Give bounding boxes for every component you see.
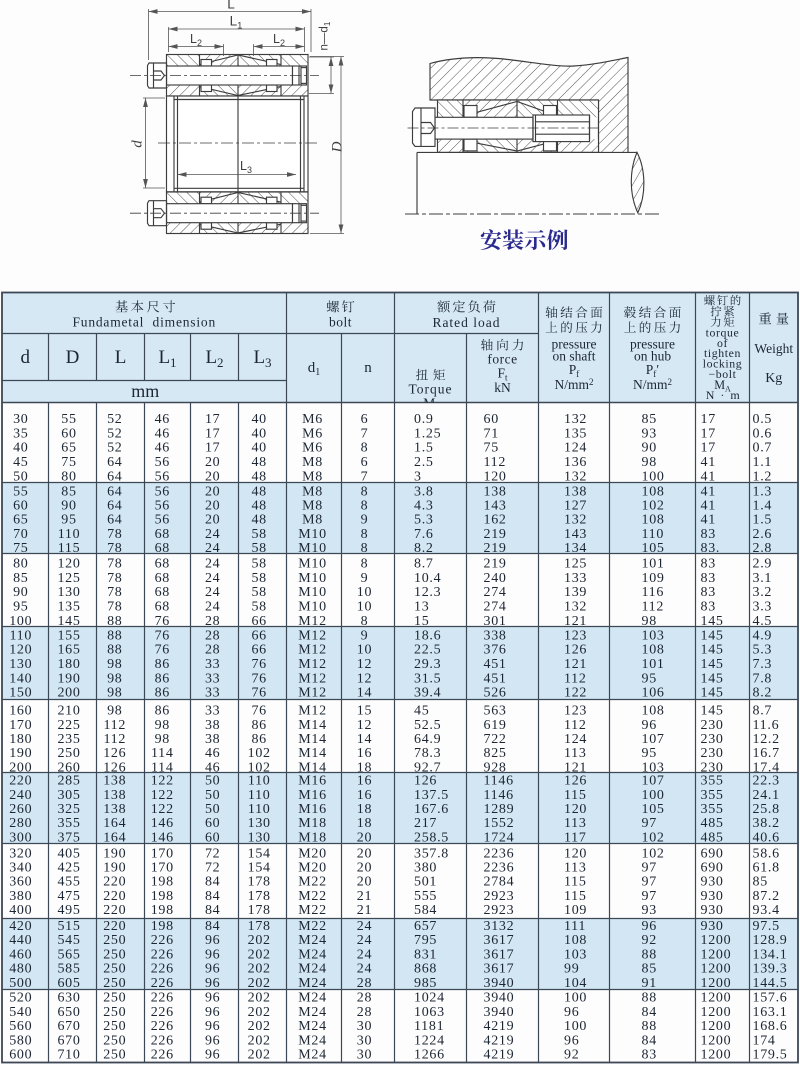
svg-text:2.5: 2.5 xyxy=(414,455,434,470)
svg-text:d: d xyxy=(21,347,31,368)
svg-text:12.2: 12.2 xyxy=(753,732,780,747)
svg-text:202: 202 xyxy=(248,1033,271,1048)
svg-text:M12: M12 xyxy=(298,704,327,719)
svg-text:M18: M18 xyxy=(298,816,327,831)
svg-text:93: 93 xyxy=(642,903,657,918)
svg-text:134: 134 xyxy=(564,541,587,556)
svg-text:38.2: 38.2 xyxy=(753,816,780,831)
svg-text:280: 280 xyxy=(9,816,32,831)
svg-text:20: 20 xyxy=(205,469,220,484)
svg-text:76: 76 xyxy=(155,614,170,629)
svg-text:405: 405 xyxy=(57,846,80,861)
svg-text:138: 138 xyxy=(484,485,507,500)
svg-text:1146: 1146 xyxy=(484,788,514,803)
svg-text:338: 338 xyxy=(484,628,507,643)
svg-text:24: 24 xyxy=(205,557,220,572)
svg-text:M6: M6 xyxy=(302,412,323,427)
svg-text:97.5: 97.5 xyxy=(753,919,780,934)
svg-text:460: 460 xyxy=(9,947,32,962)
svg-text:795: 795 xyxy=(414,933,437,948)
svg-text:250: 250 xyxy=(103,962,126,977)
svg-text:M24: M24 xyxy=(298,947,327,962)
svg-text:420: 420 xyxy=(9,919,32,934)
svg-text:45: 45 xyxy=(414,704,429,719)
svg-text:96: 96 xyxy=(205,991,220,1006)
svg-text:121: 121 xyxy=(564,657,587,672)
svg-text:145: 145 xyxy=(701,643,724,658)
svg-text:M24: M24 xyxy=(298,962,327,977)
svg-text:4219: 4219 xyxy=(484,1033,515,1048)
svg-text:83: 83 xyxy=(701,557,716,572)
svg-text:95: 95 xyxy=(13,600,28,615)
svg-text:109: 109 xyxy=(642,571,665,586)
svg-text:120: 120 xyxy=(564,802,587,817)
svg-text:64: 64 xyxy=(107,485,122,500)
svg-text:76: 76 xyxy=(251,686,266,701)
svg-text:60: 60 xyxy=(205,830,220,845)
svg-text:128.9: 128.9 xyxy=(753,933,788,948)
svg-text:M24: M24 xyxy=(298,1019,327,1034)
svg-text:1.1: 1.1 xyxy=(753,455,773,470)
svg-text:121: 121 xyxy=(564,614,587,629)
svg-text:65: 65 xyxy=(61,441,76,456)
svg-text:1224: 1224 xyxy=(414,1033,445,1048)
svg-text:98: 98 xyxy=(107,657,122,672)
svg-text:170: 170 xyxy=(151,846,174,861)
svg-text:M8: M8 xyxy=(302,485,323,500)
svg-text:226: 226 xyxy=(151,962,174,977)
svg-text:72: 72 xyxy=(205,861,220,876)
svg-text:240: 240 xyxy=(484,571,507,586)
svg-text:825: 825 xyxy=(484,746,507,761)
svg-text:122: 122 xyxy=(151,774,174,789)
svg-text:115: 115 xyxy=(564,788,587,803)
svg-text:320: 320 xyxy=(9,846,32,861)
svg-text:178: 178 xyxy=(248,919,271,934)
svg-text:930: 930 xyxy=(701,919,724,934)
svg-text:33: 33 xyxy=(205,671,220,686)
svg-text:30: 30 xyxy=(13,412,28,427)
svg-text:M16: M16 xyxy=(298,788,327,803)
svg-text:585: 585 xyxy=(57,962,80,977)
svg-text:376: 376 xyxy=(484,643,507,658)
svg-text:100: 100 xyxy=(9,614,32,629)
svg-text:M24: M24 xyxy=(298,1033,327,1048)
svg-text:110: 110 xyxy=(248,802,271,817)
svg-text:7.3: 7.3 xyxy=(753,657,773,672)
svg-text:4219: 4219 xyxy=(484,1048,515,1063)
svg-text:250: 250 xyxy=(103,1019,126,1034)
svg-text:8: 8 xyxy=(361,441,369,456)
svg-text:96: 96 xyxy=(564,1033,579,1048)
svg-text:132: 132 xyxy=(564,513,587,528)
svg-text:86: 86 xyxy=(155,671,170,686)
svg-text:130: 130 xyxy=(57,585,80,600)
svg-text:300: 300 xyxy=(9,830,32,845)
svg-text:91: 91 xyxy=(642,976,657,991)
svg-text:120: 120 xyxy=(564,846,587,861)
svg-text:1146: 1146 xyxy=(484,774,514,789)
svg-text:40: 40 xyxy=(251,441,266,456)
svg-text:86: 86 xyxy=(155,657,170,672)
svg-text:1.2: 1.2 xyxy=(753,469,773,484)
svg-text:52: 52 xyxy=(107,412,122,427)
svg-text:1181: 1181 xyxy=(414,1019,444,1034)
svg-text:235: 235 xyxy=(57,732,80,747)
svg-text:219: 219 xyxy=(484,527,507,542)
svg-text:123: 123 xyxy=(564,628,587,643)
svg-text:M16: M16 xyxy=(298,802,327,817)
svg-text:113: 113 xyxy=(564,746,587,761)
svg-text:115: 115 xyxy=(564,875,587,890)
svg-text:4.3: 4.3 xyxy=(414,499,434,514)
svg-text:M10: M10 xyxy=(298,571,327,586)
svg-text:56: 56 xyxy=(155,499,170,514)
svg-text:220: 220 xyxy=(9,774,32,789)
svg-text:139: 139 xyxy=(564,585,587,600)
svg-text:3.2: 3.2 xyxy=(753,585,773,600)
svg-text:357.8: 357.8 xyxy=(414,846,449,861)
svg-text:15: 15 xyxy=(357,704,372,719)
svg-text:480: 480 xyxy=(9,962,32,977)
svg-text:7.8: 7.8 xyxy=(753,671,773,686)
svg-text:125: 125 xyxy=(57,571,80,586)
svg-text:138: 138 xyxy=(103,788,126,803)
svg-text:48: 48 xyxy=(251,455,266,470)
svg-text:3: 3 xyxy=(414,469,422,484)
svg-text:126: 126 xyxy=(564,774,587,789)
svg-text:71: 71 xyxy=(484,426,499,441)
svg-text:66: 66 xyxy=(251,643,266,658)
svg-text:100: 100 xyxy=(642,788,665,803)
svg-text:122: 122 xyxy=(151,802,174,817)
svg-text:710: 710 xyxy=(57,1048,80,1063)
svg-text:38: 38 xyxy=(205,718,220,733)
svg-text:93: 93 xyxy=(642,426,657,441)
svg-text:202: 202 xyxy=(248,1048,271,1063)
svg-text:58: 58 xyxy=(251,527,266,542)
svg-text:16: 16 xyxy=(357,746,372,761)
svg-text:154: 154 xyxy=(248,846,271,861)
svg-text:3617: 3617 xyxy=(484,933,515,948)
svg-text:1.5: 1.5 xyxy=(753,513,773,528)
svg-text:84: 84 xyxy=(205,875,220,890)
svg-text:75: 75 xyxy=(13,541,28,556)
svg-text:230: 230 xyxy=(701,746,724,761)
svg-text:Kg: Kg xyxy=(765,371,782,386)
svg-text:76: 76 xyxy=(251,704,266,719)
svg-text:70: 70 xyxy=(13,527,28,542)
svg-text:600: 600 xyxy=(9,1048,32,1063)
svg-text:14: 14 xyxy=(357,732,372,747)
svg-text:1200: 1200 xyxy=(701,947,732,962)
svg-text:96: 96 xyxy=(205,976,220,991)
svg-text:145: 145 xyxy=(57,614,80,629)
svg-text:102: 102 xyxy=(248,746,271,761)
svg-text:112: 112 xyxy=(104,732,127,747)
svg-text:31.5: 31.5 xyxy=(414,671,441,686)
svg-text:28: 28 xyxy=(205,628,220,643)
svg-text:1.25: 1.25 xyxy=(414,426,441,441)
svg-text:565: 565 xyxy=(57,947,80,962)
svg-text:96: 96 xyxy=(642,718,657,733)
svg-text:41: 41 xyxy=(701,499,716,514)
svg-text:133: 133 xyxy=(564,571,587,586)
svg-text:258.5: 258.5 xyxy=(414,830,449,845)
svg-text:78: 78 xyxy=(107,600,122,615)
svg-text:64: 64 xyxy=(107,469,122,484)
svg-text:101: 101 xyxy=(642,657,665,672)
svg-text:1200: 1200 xyxy=(701,962,732,977)
svg-text:138: 138 xyxy=(564,485,587,500)
svg-text:68: 68 xyxy=(155,527,170,542)
svg-text:88: 88 xyxy=(642,947,657,962)
svg-text:M10: M10 xyxy=(298,541,327,556)
svg-text:M14: M14 xyxy=(298,746,327,761)
svg-text:8.7: 8.7 xyxy=(753,704,773,719)
svg-text:D: D xyxy=(66,347,80,368)
svg-text:66: 66 xyxy=(251,614,266,629)
svg-text:83: 83 xyxy=(701,585,716,600)
svg-text:3617: 3617 xyxy=(484,962,515,977)
svg-text:3.1: 3.1 xyxy=(753,571,773,586)
svg-text:92: 92 xyxy=(564,1048,579,1063)
svg-text:90: 90 xyxy=(61,499,76,514)
svg-text:202: 202 xyxy=(248,962,271,977)
svg-text:M22: M22 xyxy=(298,919,327,934)
svg-text:274: 274 xyxy=(484,585,507,600)
svg-text:190: 190 xyxy=(103,846,126,861)
svg-text:2.6: 2.6 xyxy=(753,527,773,542)
svg-text:143: 143 xyxy=(484,499,507,514)
svg-text:M14: M14 xyxy=(298,732,327,747)
svg-text:112: 112 xyxy=(642,600,665,615)
svg-text:340: 340 xyxy=(9,861,32,876)
svg-text:96: 96 xyxy=(642,919,657,934)
svg-text:12.3: 12.3 xyxy=(414,585,441,600)
svg-text:96: 96 xyxy=(205,947,220,962)
svg-text:96: 96 xyxy=(205,1033,220,1048)
svg-text:116: 116 xyxy=(642,585,665,600)
svg-text:22.3: 22.3 xyxy=(753,774,780,789)
svg-text:46: 46 xyxy=(155,426,170,441)
svg-text:168.6: 168.6 xyxy=(753,1019,788,1034)
svg-text:0.5: 0.5 xyxy=(753,412,773,427)
svg-text:495: 495 xyxy=(57,903,80,918)
svg-text:bolt: bolt xyxy=(329,315,352,330)
svg-text:3.3: 3.3 xyxy=(753,600,773,615)
svg-text:16.7: 16.7 xyxy=(753,746,780,761)
svg-text:138: 138 xyxy=(103,802,126,817)
svg-text:584: 584 xyxy=(414,903,437,918)
svg-text:28: 28 xyxy=(205,643,220,658)
svg-text:2236: 2236 xyxy=(484,861,515,876)
svg-text:40: 40 xyxy=(251,412,266,427)
svg-text:110: 110 xyxy=(248,774,271,789)
svg-text:8: 8 xyxy=(361,527,369,542)
svg-text:100: 100 xyxy=(564,1019,587,1034)
svg-text:250: 250 xyxy=(103,933,126,948)
svg-text:78.3: 78.3 xyxy=(414,746,441,761)
svg-text:kN: kN xyxy=(494,380,511,395)
svg-text:150: 150 xyxy=(9,686,32,701)
svg-text:55: 55 xyxy=(13,485,28,500)
svg-text:831: 831 xyxy=(414,947,437,962)
svg-text:0.9: 0.9 xyxy=(414,412,434,427)
svg-text:0.7: 0.7 xyxy=(753,441,773,456)
svg-text:20: 20 xyxy=(357,830,372,845)
svg-text:11.6: 11.6 xyxy=(753,718,780,733)
svg-text:1.3: 1.3 xyxy=(753,485,773,500)
svg-text:21: 21 xyxy=(357,889,372,904)
svg-text:68: 68 xyxy=(155,585,170,600)
svg-text:1266: 1266 xyxy=(414,1048,445,1063)
svg-text:930: 930 xyxy=(701,889,724,904)
svg-text:96: 96 xyxy=(205,1019,220,1034)
svg-text:17: 17 xyxy=(205,441,220,456)
svg-text:24: 24 xyxy=(357,947,372,962)
svg-text:88: 88 xyxy=(107,643,122,658)
svg-text:98: 98 xyxy=(107,704,122,719)
svg-text:45: 45 xyxy=(13,455,28,470)
svg-text:80: 80 xyxy=(61,469,76,484)
svg-text:250: 250 xyxy=(103,991,126,1006)
svg-text:103: 103 xyxy=(564,947,587,962)
svg-text:10: 10 xyxy=(357,643,372,658)
svg-text:60: 60 xyxy=(484,412,499,427)
svg-text:102: 102 xyxy=(642,846,665,861)
svg-text:200: 200 xyxy=(57,686,80,701)
svg-text:8: 8 xyxy=(361,614,369,629)
svg-text:6: 6 xyxy=(361,455,369,470)
svg-text:9: 9 xyxy=(361,513,369,528)
svg-text:M24: M24 xyxy=(298,1048,327,1063)
svg-text:64: 64 xyxy=(107,455,122,470)
svg-text:520: 520 xyxy=(9,991,32,1006)
svg-text:164: 164 xyxy=(103,830,126,845)
svg-text:M24: M24 xyxy=(298,1005,327,1020)
svg-text:132: 132 xyxy=(564,600,587,615)
svg-text:8.2: 8.2 xyxy=(414,541,434,556)
svg-text:50: 50 xyxy=(205,788,220,803)
svg-text:124: 124 xyxy=(564,441,587,456)
svg-text:38: 38 xyxy=(205,732,220,747)
svg-text:84: 84 xyxy=(642,1033,657,1048)
svg-text:M12: M12 xyxy=(298,671,327,686)
svg-text:39.4: 39.4 xyxy=(414,686,441,701)
svg-text:145: 145 xyxy=(701,671,724,686)
svg-text:65: 65 xyxy=(13,513,28,528)
svg-text:226: 226 xyxy=(151,1033,174,1048)
svg-text:83: 83 xyxy=(701,600,716,615)
svg-text:107: 107 xyxy=(642,732,665,747)
svg-text:86: 86 xyxy=(155,704,170,719)
svg-text:210: 210 xyxy=(57,704,80,719)
svg-text:60: 60 xyxy=(205,816,220,831)
svg-text:96: 96 xyxy=(205,1005,220,1020)
svg-text:114: 114 xyxy=(151,746,174,761)
svg-text:90: 90 xyxy=(13,585,28,600)
svg-text:50: 50 xyxy=(205,774,220,789)
svg-text:60: 60 xyxy=(61,426,76,441)
svg-text:Weight: Weight xyxy=(754,341,793,356)
svg-text:90: 90 xyxy=(642,441,657,456)
svg-text:1.4: 1.4 xyxy=(753,499,773,514)
svg-text:96: 96 xyxy=(205,933,220,948)
svg-text:106: 106 xyxy=(642,686,665,701)
svg-text:140: 140 xyxy=(9,671,32,686)
svg-text:4.5: 4.5 xyxy=(753,614,773,629)
svg-text:560: 560 xyxy=(9,1019,32,1034)
svg-text:1.5: 1.5 xyxy=(414,441,434,456)
svg-text:180: 180 xyxy=(57,657,80,672)
svg-text:M22: M22 xyxy=(298,875,327,890)
svg-text:100: 100 xyxy=(564,991,587,1006)
svg-text:96: 96 xyxy=(205,1048,220,1063)
svg-text:219: 219 xyxy=(484,541,507,556)
svg-text:250: 250 xyxy=(103,976,126,991)
svg-text:108: 108 xyxy=(642,485,665,500)
svg-text:85: 85 xyxy=(753,875,768,890)
svg-text:355: 355 xyxy=(701,788,724,803)
svg-text:mm: mm xyxy=(131,381,159,401)
svg-text:220: 220 xyxy=(103,875,126,890)
svg-text:72: 72 xyxy=(205,846,220,861)
svg-text:85: 85 xyxy=(13,571,28,586)
svg-text:110: 110 xyxy=(248,788,271,803)
svg-text:178: 178 xyxy=(248,889,271,904)
svg-text:14: 14 xyxy=(357,686,372,701)
svg-text:220: 220 xyxy=(103,903,126,918)
svg-text:24: 24 xyxy=(205,527,220,542)
svg-text:126: 126 xyxy=(103,746,126,761)
svg-text:L: L xyxy=(115,347,127,368)
svg-text:68: 68 xyxy=(155,600,170,615)
svg-text:120: 120 xyxy=(9,643,32,658)
svg-text:68: 68 xyxy=(155,557,170,572)
svg-text:N/mm2: N/mm2 xyxy=(554,377,593,392)
svg-text:78: 78 xyxy=(107,541,122,556)
svg-text:2784: 2784 xyxy=(484,875,515,890)
svg-text:10: 10 xyxy=(357,600,372,615)
svg-text:75: 75 xyxy=(61,455,76,470)
svg-text:61.8: 61.8 xyxy=(753,861,780,876)
svg-text:98: 98 xyxy=(155,732,170,747)
svg-text:D: D xyxy=(330,141,346,153)
svg-text:56: 56 xyxy=(155,469,170,484)
svg-text:226: 226 xyxy=(151,1019,174,1034)
svg-text:930: 930 xyxy=(701,903,724,918)
svg-text:58: 58 xyxy=(251,600,266,615)
svg-text:M16: M16 xyxy=(298,774,327,789)
svg-text:68: 68 xyxy=(155,571,170,586)
svg-text:40: 40 xyxy=(13,441,28,456)
svg-text:3940: 3940 xyxy=(484,991,515,1006)
svg-text:40: 40 xyxy=(251,426,266,441)
svg-text:25.8: 25.8 xyxy=(753,802,780,817)
svg-text:M10: M10 xyxy=(298,527,327,542)
svg-text:130: 130 xyxy=(248,830,271,845)
svg-text:104: 104 xyxy=(564,976,587,991)
svg-text:10: 10 xyxy=(357,585,372,600)
svg-text:179.5: 179.5 xyxy=(753,1048,788,1063)
svg-text:146: 146 xyxy=(151,816,174,831)
svg-text:180: 180 xyxy=(9,732,32,747)
svg-text:225: 225 xyxy=(57,718,80,733)
svg-text:87.2: 87.2 xyxy=(753,889,780,904)
svg-text:55: 55 xyxy=(61,412,76,427)
svg-text:985: 985 xyxy=(414,976,437,991)
